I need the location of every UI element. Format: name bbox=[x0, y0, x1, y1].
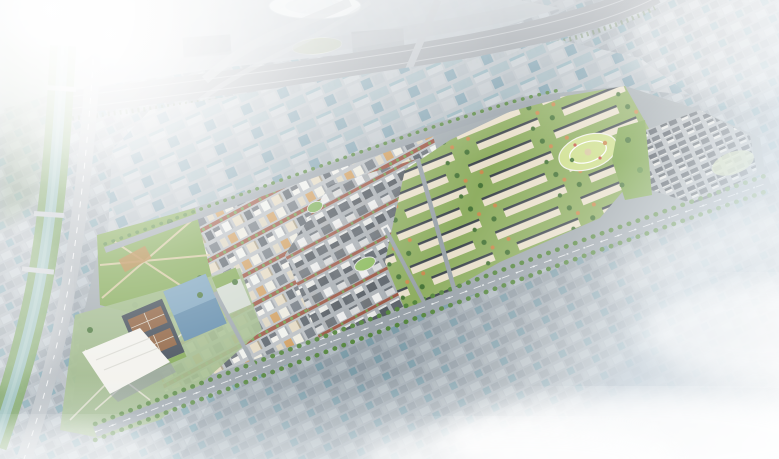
rendering-canvas: Existing low-rise cityscape Domed stadiu… bbox=[0, 0, 779, 459]
aerial-rendering: Existing low-rise cityscape Domed stadiu… bbox=[0, 0, 779, 459]
fog-overlays: Fog and sun haze bbox=[0, 0, 779, 459]
